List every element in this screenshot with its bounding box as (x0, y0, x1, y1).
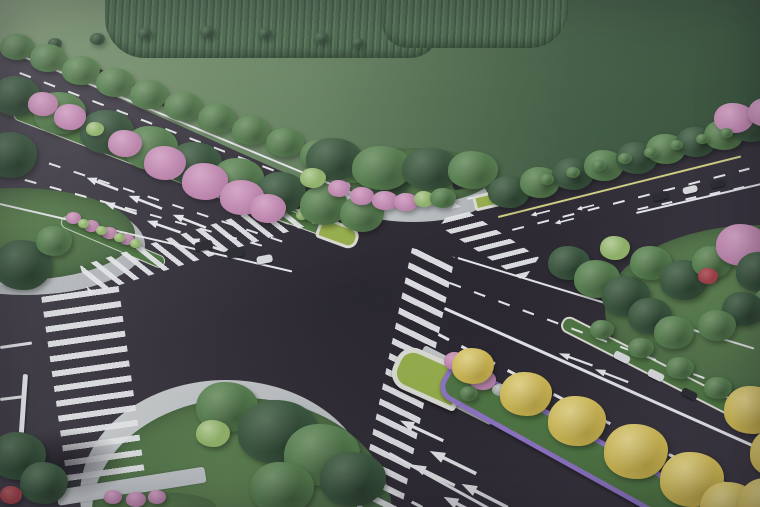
tree-green (670, 140, 683, 150)
tree-pink-blossom (144, 146, 186, 180)
tree-pink-blossom (350, 187, 374, 205)
tree-dark-green (0, 132, 37, 178)
lane-arrow (145, 217, 182, 236)
tree-pink-blossom (250, 194, 286, 223)
lane-line (0, 342, 32, 349)
tree-ginkgo-yellow (500, 372, 552, 416)
tree-ginkgo-yellow (724, 386, 760, 434)
sprite-layer (0, 0, 760, 507)
tree-green (266, 128, 304, 157)
tree-green (566, 167, 580, 178)
lane-arrow (427, 446, 479, 479)
tree-pink-blossom (54, 104, 86, 130)
tree-light-green (600, 236, 630, 260)
shrub-red (0, 486, 22, 504)
tree-green (96, 68, 134, 97)
tree-green (698, 310, 736, 341)
lane-arrow (530, 208, 551, 218)
tree-green (654, 316, 694, 349)
tree-ginkgo-yellow (738, 478, 760, 507)
tree-pink-blossom (328, 180, 350, 197)
tree-green (720, 128, 733, 138)
tree-dark-green (314, 32, 329, 44)
tree-green (460, 386, 478, 401)
tree-dark-green (258, 28, 272, 39)
tree-ginkgo-yellow (604, 424, 668, 479)
aerial-intersection-rendering (0, 0, 760, 507)
tree-green (30, 44, 66, 72)
tree-green (644, 147, 658, 158)
tree-light-green (300, 168, 326, 188)
tree-dark-green (320, 452, 386, 506)
tree-dark-green (20, 462, 68, 504)
car-dark (710, 179, 726, 189)
lane-arrow (459, 479, 510, 507)
tree-pink-blossom (28, 92, 58, 116)
tree-green (590, 320, 614, 339)
tree-green (62, 56, 100, 85)
tree-green (666, 357, 694, 379)
shrub-red (698, 268, 718, 284)
tree-light-green (78, 219, 89, 228)
tree-dark-green (90, 33, 105, 45)
tree-green (430, 188, 456, 208)
tree-green (628, 338, 654, 358)
tree-green (540, 174, 554, 185)
tree-dark-green (200, 26, 215, 38)
tree-green (232, 116, 270, 145)
tree-light-green (96, 226, 107, 235)
tree-green (250, 462, 314, 507)
tree-pink-blossom (148, 490, 166, 504)
car-dark (226, 247, 245, 259)
tree-dark-green (138, 28, 152, 39)
tree-green (198, 104, 236, 133)
tree-pink-blossom (108, 130, 142, 157)
tree-ginkgo-yellow (750, 428, 760, 478)
tree-light-green (86, 122, 104, 136)
tree-pink-blossom (126, 492, 146, 507)
tree-light-green (196, 420, 230, 447)
tree-light-green (130, 239, 141, 248)
tree-ginkgo-yellow (548, 396, 606, 446)
tree-green (592, 160, 606, 171)
tree-green (0, 34, 34, 60)
tree-green (618, 153, 632, 164)
car-white (256, 254, 273, 265)
tree-pink-blossom (104, 490, 122, 504)
tree-dark-green (352, 38, 364, 48)
tree-green (130, 80, 168, 109)
tree-green (164, 92, 202, 121)
tree-ginkgo-yellow (452, 348, 494, 384)
tree-green (36, 226, 72, 256)
tree-light-green (114, 233, 125, 242)
crosswalk-east (440, 203, 539, 281)
tree-green (696, 134, 709, 144)
